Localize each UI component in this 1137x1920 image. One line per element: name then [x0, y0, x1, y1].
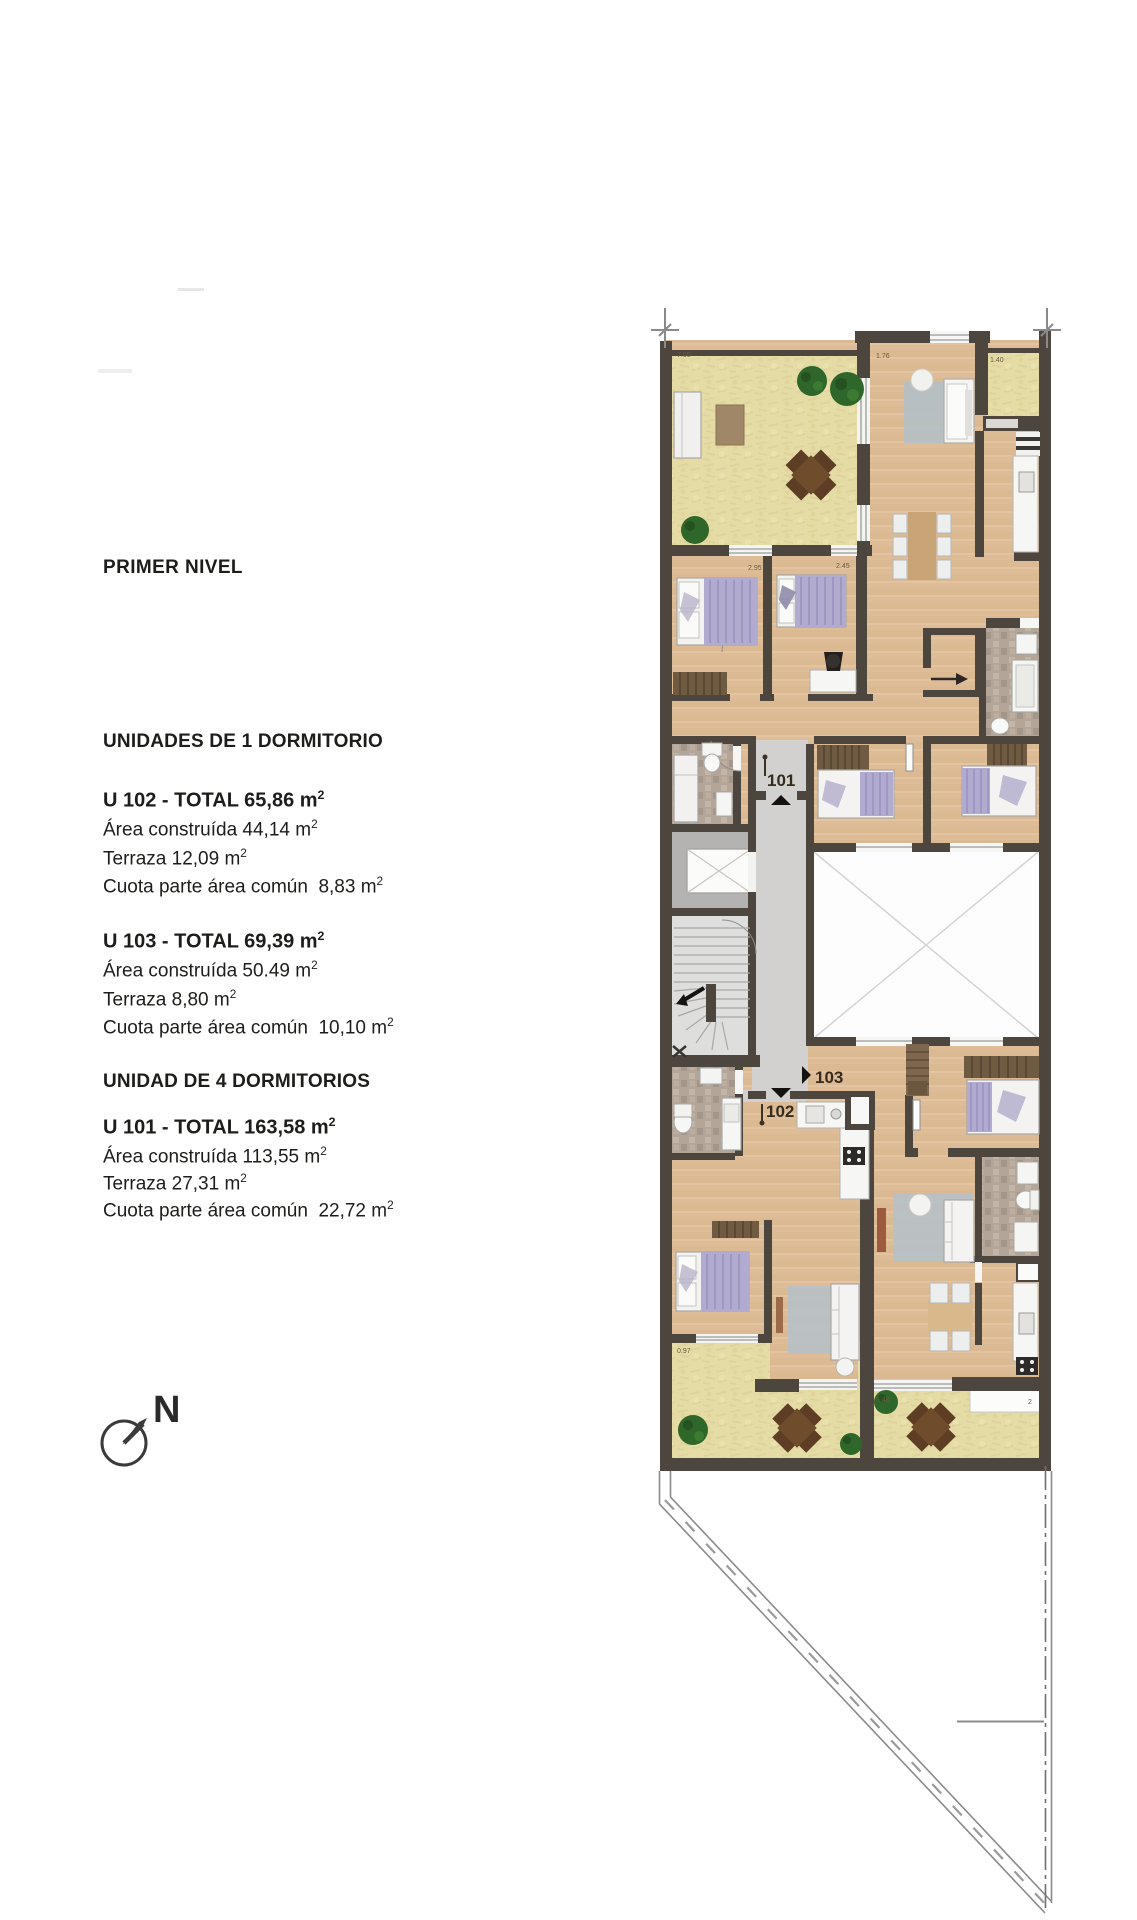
svg-text:2.95: 2.95	[748, 565, 762, 572]
svg-text:102: 102	[766, 1102, 794, 1121]
svg-text:0.97: 0.97	[677, 1348, 691, 1355]
svg-text:N: N	[153, 1389, 180, 1431]
svg-text:101: 101	[767, 771, 795, 790]
svg-text:7.05: 7.05	[677, 352, 691, 359]
svg-text:1.40: 1.40	[990, 357, 1004, 364]
svg-text:103: 103	[815, 1068, 843, 1087]
svg-text:1.76: 1.76	[876, 353, 890, 360]
svg-text:2.45: 2.45	[836, 563, 850, 570]
svg-text:5.48: 5.48	[876, 1397, 890, 1404]
svg-text:2: 2	[1028, 1399, 1032, 1406]
